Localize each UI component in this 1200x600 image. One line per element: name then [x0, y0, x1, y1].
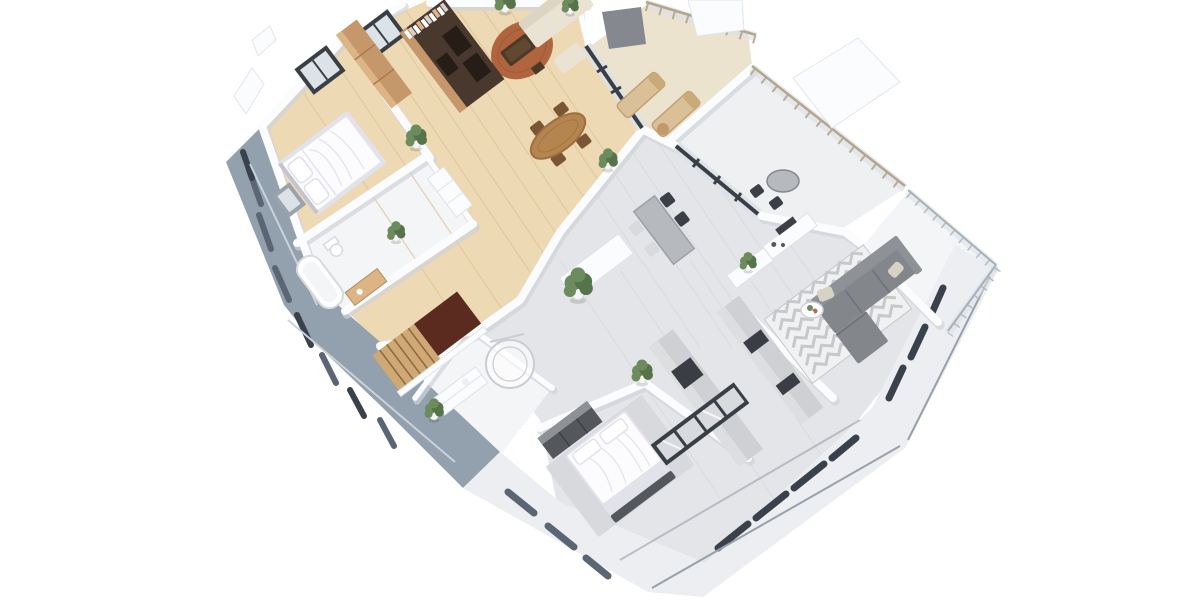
wall-shard-nw-2	[252, 26, 276, 56]
flower-side-table	[801, 302, 823, 318]
floor-plan-stage: Isometric 3D floor plan rendering of a t…	[0, 0, 1200, 600]
round-terrace-table	[767, 170, 799, 192]
wall-shard-nw-1	[234, 68, 264, 114]
lounger-side-table	[657, 123, 669, 135]
privacy-screen	[602, 7, 646, 49]
floor-plan-render: Isometric 3D floor plan rendering of a t…	[0, 0, 1200, 600]
roof-pillar	[688, 0, 744, 36]
